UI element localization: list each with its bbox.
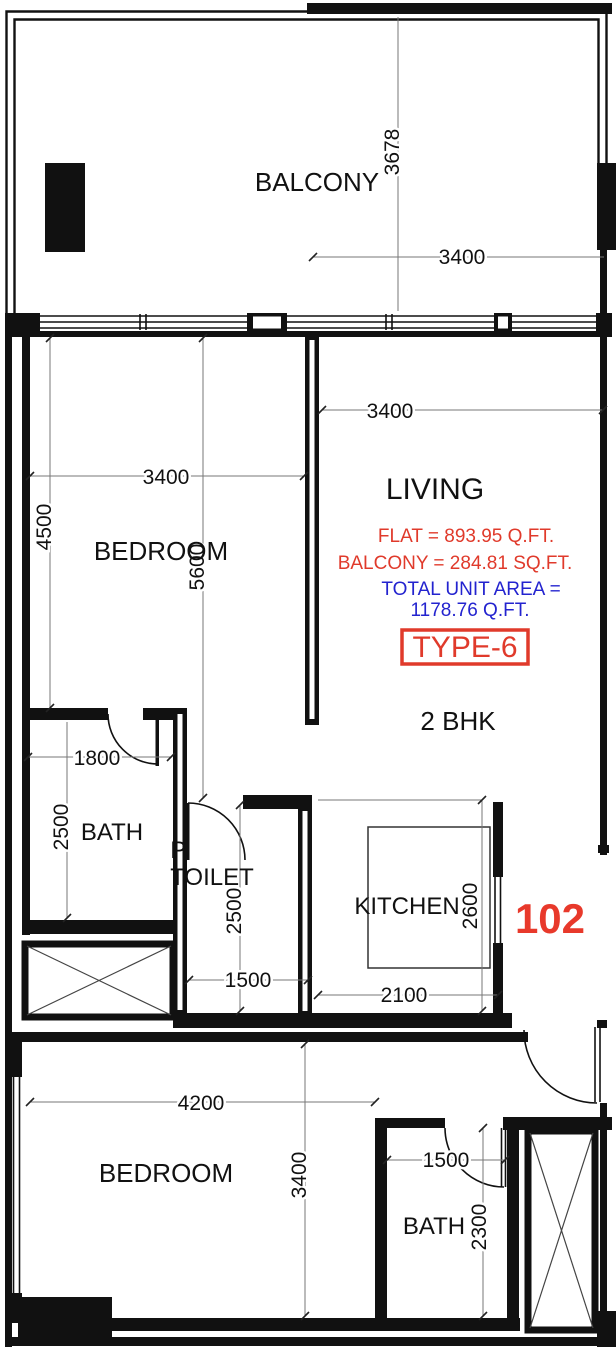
- balcony-railing: [7, 12, 607, 314]
- kitchen-right-wall-upper: [493, 802, 503, 877]
- dim-bedroom1-width: 3400: [143, 466, 190, 489]
- dim-bath2-height: 2300: [468, 1204, 491, 1251]
- dim-living-width: 3400: [367, 400, 414, 423]
- bedroom-window: [40, 314, 247, 330]
- dim-kitchen-width: 2100: [381, 984, 428, 1007]
- right-outer-wall-lower: [600, 1103, 607, 1333]
- dim-kitchen-height: 2600: [459, 883, 482, 930]
- bath1-label: BATH: [81, 819, 143, 846]
- duct-shaft-left: [25, 944, 173, 1017]
- toilet-right-wall: [298, 805, 312, 1028]
- dim-bedroom2-width: 4200: [178, 1092, 225, 1115]
- bedroom1-bottom-wall: [22, 708, 108, 720]
- balcony-column-right: [597, 163, 616, 250]
- left-outer-wall: [5, 313, 12, 1347]
- living-label: LIVING: [386, 473, 484, 506]
- kitchen-service-window: [495, 877, 501, 943]
- bedroom2-top-wall: [12, 1032, 528, 1042]
- ptoilet-label-line1: P.: [170, 837, 190, 864]
- bedroom2-left-wall-bottom: [12, 1293, 22, 1323]
- kitchen-label: KITCHEN: [354, 893, 459, 920]
- bedroom2-bottom-wall: [112, 1318, 375, 1331]
- bhk-label: 2 BHK: [420, 706, 496, 736]
- bottom-left-column: [18, 1297, 112, 1345]
- unit-number: 102: [515, 895, 585, 942]
- bedroom1-left-wall: [22, 337, 30, 935]
- dim-bath1-height: 2500: [50, 804, 73, 851]
- bath2-bottom-wall: [375, 1318, 520, 1331]
- type-label: TYPE-6: [412, 631, 517, 664]
- balcony-area-text: BALCONY = 284.81 SQ.FT.: [338, 553, 573, 574]
- right-wall-end-cap: [598, 845, 609, 853]
- kitchen-right-wall-lower: [493, 943, 503, 1017]
- dim-toilet-height: 2500: [223, 888, 246, 935]
- bath1-bottom-wall: [22, 920, 176, 934]
- right-outer-wall-upper: [600, 250, 607, 855]
- living-partition-wall: [305, 337, 319, 725]
- dim-toilet-width: 1500: [225, 969, 272, 992]
- floor-plan: 3678 3400 3400 3400 4500 5600 1800 2500 …: [0, 0, 616, 1350]
- dim-balcony-width: 3400: [439, 246, 486, 269]
- bath2-right-wall: [507, 1118, 519, 1330]
- dim-bath1-width: 1800: [74, 747, 121, 770]
- ptoilet-label-line2: TOILET: [170, 864, 254, 891]
- toilet-door: [186, 803, 245, 860]
- duct-shaft-right: [528, 1131, 595, 1330]
- balcony-top-wall: [307, 3, 612, 14]
- bedroom2-window: [14, 1077, 20, 1293]
- bedroom2-label: BEDROOM: [99, 1158, 233, 1188]
- total-area-text-line2: 1178.76 Q.FT.: [411, 600, 530, 621]
- bath2-top-wall: [375, 1118, 445, 1128]
- bottom-right-column: [597, 1311, 616, 1347]
- entry-door: [524, 1027, 600, 1103]
- bath2-left-wall: [375, 1118, 387, 1330]
- balcony-column-left: [45, 163, 85, 252]
- balcony-label: BALCONY: [255, 167, 379, 197]
- total-area-text-line1: TOTAL UNIT AREA =: [381, 579, 560, 600]
- living-window-right: [512, 316, 596, 328]
- bath2-label: BATH: [403, 1213, 465, 1240]
- entry-jamb-top: [597, 1020, 607, 1028]
- dim-bedroom2-height: 3400: [288, 1152, 311, 1199]
- flat-area-text: FLAT = 893.95 Q.FT.: [378, 526, 554, 547]
- dim-balcony-depth: 3678: [381, 129, 404, 176]
- dim-bath2-width: 1500: [423, 1149, 470, 1172]
- front-wall-band: [12, 313, 612, 337]
- bedroom1-label: BEDROOM: [94, 536, 228, 566]
- floor-plan-drawing: 3678 3400 3400 3400 4500 5600 1800 2500 …: [0, 0, 616, 1350]
- dim-bedroom1-height: 4500: [33, 504, 56, 551]
- living-window: [287, 314, 494, 330]
- kitchen-bottom-wall: [173, 1013, 512, 1028]
- bedroom2-left-wall-top: [12, 1042, 22, 1077]
